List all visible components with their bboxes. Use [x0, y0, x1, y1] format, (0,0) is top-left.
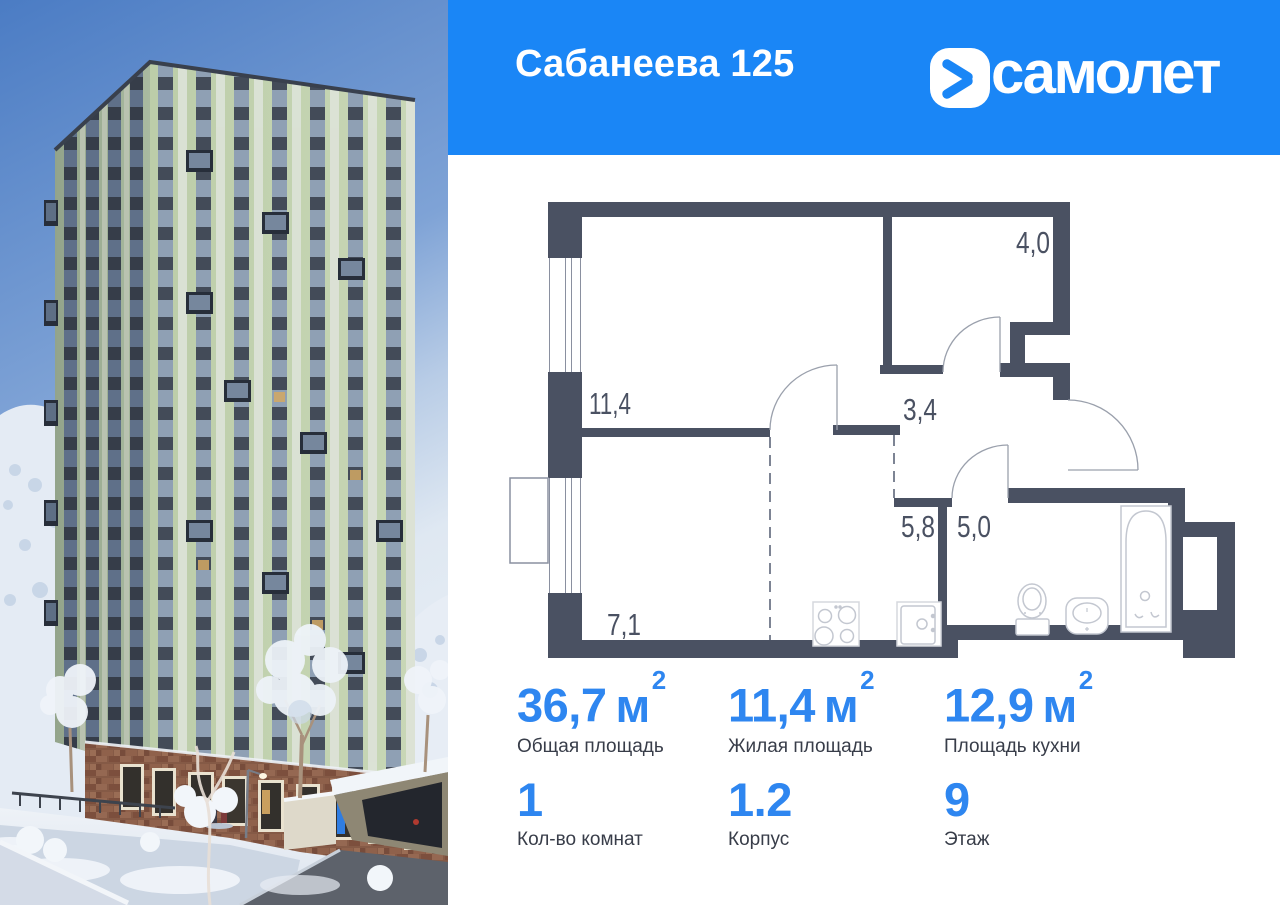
stat-rooms-count: 1 Кол-во комнат	[517, 776, 727, 850]
stat-label: Общая площадь	[517, 737, 727, 757]
residential-tower	[44, 40, 415, 780]
room-area-label: 11,4	[589, 386, 631, 421]
brand-logo: самолет	[927, 48, 993, 110]
room-area-label: 5,8	[901, 509, 935, 544]
window-left-top	[550, 258, 581, 372]
window-left-bottom	[550, 478, 581, 593]
balcony-ledge	[510, 478, 548, 563]
building-photo	[0, 0, 448, 905]
stat-total-area: 36,7м2 Общая площадь	[517, 672, 727, 757]
stat-value: 9	[944, 776, 1154, 824]
stat-value: 1.2	[728, 776, 938, 824]
sink-icon	[897, 602, 941, 646]
header: Сабанеева 125 самолет	[448, 0, 1280, 155]
stat-floor-number: 9 Этаж	[944, 776, 1154, 850]
stat-building-number: 1.2 Корпус	[728, 776, 938, 850]
stat-value: 11,4м2	[728, 672, 938, 730]
stat-label: Площадь кухни	[944, 737, 1154, 757]
stat-label: Этаж	[944, 830, 1154, 850]
room-area-label: 5,0	[957, 509, 991, 544]
stat-value: 36,7м2	[517, 672, 727, 730]
floorplan: 11,4 4,0 3,4 5,8 5,0 7,1	[505, 200, 1235, 670]
floorplan-drawing: 11,4 4,0 3,4 5,8 5,0 7,1	[505, 200, 1235, 670]
page-title: Сабанеева 125	[515, 44, 794, 84]
room-area-label: 3,4	[903, 392, 937, 427]
stove-icon	[813, 602, 859, 646]
room-area-label: 4,0	[1016, 225, 1050, 260]
stat-living-area: 11,4м2 Жилая площадь	[728, 672, 938, 757]
stat-label: Кол-во комнат	[517, 830, 727, 850]
room-area-label: 7,1	[607, 607, 641, 642]
stat-label: Корпус	[728, 830, 938, 850]
listing-card: Сабанеева 125 самолет	[0, 0, 1280, 905]
washbasin-icon	[1066, 598, 1108, 634]
toilet-icon	[1016, 584, 1049, 635]
brand-name: самолет	[991, 42, 1219, 104]
bathtub-icon	[1121, 506, 1171, 632]
doors	[770, 317, 1138, 498]
stat-kitchen-area: 12,9м2 Площадь кухни	[944, 672, 1154, 757]
stat-value: 1	[517, 776, 727, 824]
stat-value: 12,9м2	[944, 672, 1154, 730]
samolet-logo-icon	[927, 48, 993, 114]
stat-label: Жилая площадь	[728, 737, 938, 757]
building-photo-illustration	[0, 0, 448, 905]
